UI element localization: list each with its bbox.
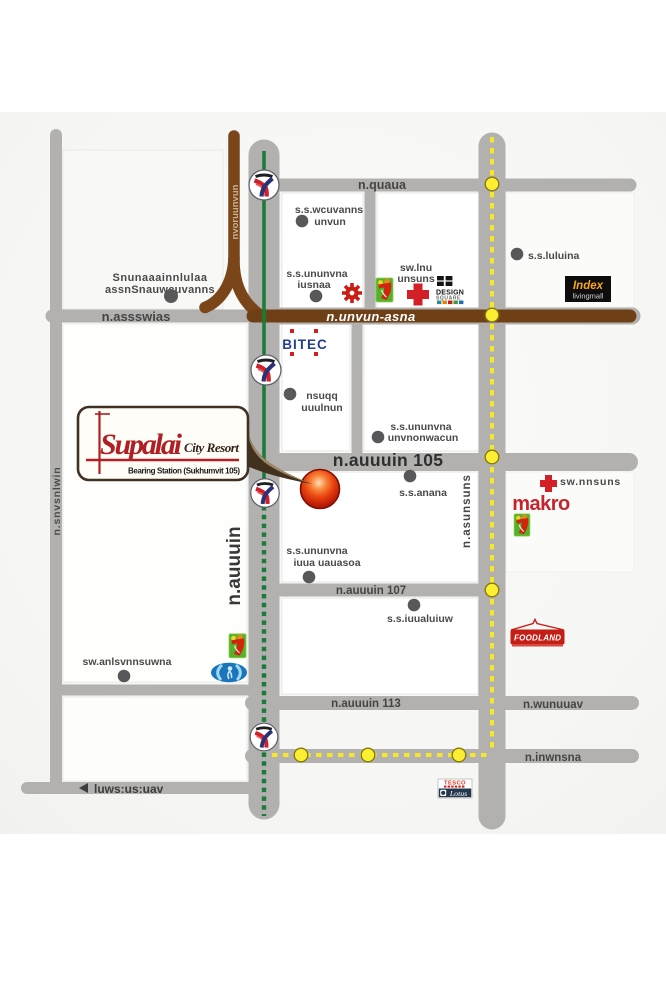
svg-text:assnSnauwcuvanns: assnSnauwcuvanns <box>105 284 215 296</box>
svg-text:unvnonwacun: unvnonwacun <box>388 432 459 444</box>
svg-text:unvun: unvun <box>314 216 346 228</box>
svg-text:s.s.luluina: s.s.luluina <box>528 250 580 262</box>
svg-text:s.s.anana: s.s.anana <box>399 487 447 499</box>
svg-text:n.auuuin: n.auuuin <box>224 526 245 605</box>
svg-text:unsuns: unsuns <box>397 273 434 285</box>
svg-text:n.assswias: n.assswias <box>102 309 171 324</box>
svg-text:BITEC: BITEC <box>282 337 328 352</box>
svg-text:n.auuuin 113: n.auuuin 113 <box>331 698 401 710</box>
svg-text:s.s.iuualuiuw: s.s.iuualuiuw <box>387 613 454 625</box>
svg-text:livingmall: livingmall <box>573 292 604 301</box>
svg-text:FOODLAND: FOODLAND <box>514 634 561 643</box>
svg-text:Index: Index <box>573 280 604 292</box>
svg-text:n.auuuin 107: n.auuuin 107 <box>336 585 406 597</box>
svg-text:Supalai: Supalai <box>100 428 183 461</box>
svg-text:Snunaaainnlulaa: Snunaaainnlulaa <box>113 272 208 284</box>
svg-text:uuulnun: uuulnun <box>301 402 342 414</box>
svg-text:n.unvun-asna: n.unvun-asna <box>326 309 415 324</box>
svg-text:n.snvsnlwin: n.snvsnlwin <box>51 467 63 536</box>
svg-text:n.quaua: n.quaua <box>358 178 407 192</box>
svg-text:n.inwnsna: n.inwnsna <box>525 752 582 764</box>
svg-text:luws:us:uav: luws:us:uav <box>94 782 164 796</box>
svg-text:nvoruunvun: nvoruunvun <box>230 184 241 239</box>
svg-text:s.s.wcuvanns: s.s.wcuvanns <box>295 204 363 216</box>
svg-text:nsuqq: nsuqq <box>306 390 338 402</box>
svg-text:sw.nnsuns: sw.nnsuns <box>560 476 621 488</box>
svg-text:s.s.ununvna: s.s.ununvna <box>286 545 347 557</box>
svg-text:Lotus: Lotus <box>449 789 467 798</box>
svg-text:n.asunsuns: n.asunsuns <box>461 474 473 548</box>
svg-text:makro: makro <box>512 493 570 515</box>
svg-text:n.auuuin 105: n.auuuin 105 <box>333 450 444 470</box>
svg-text:Bearing Station (Sukhumvit 105: Bearing Station (Sukhumvit 105) <box>128 467 240 476</box>
svg-text:City Resort: City Resort <box>184 440 239 455</box>
svg-text:iuua uauasoa: iuua uauasoa <box>293 557 360 569</box>
svg-text:iusnaa: iusnaa <box>297 279 330 291</box>
svg-text:n.wunuuav: n.wunuuav <box>523 699 584 711</box>
svg-text:sw.anlsvnnsuwna: sw.anlsvnnsuwna <box>83 656 172 668</box>
